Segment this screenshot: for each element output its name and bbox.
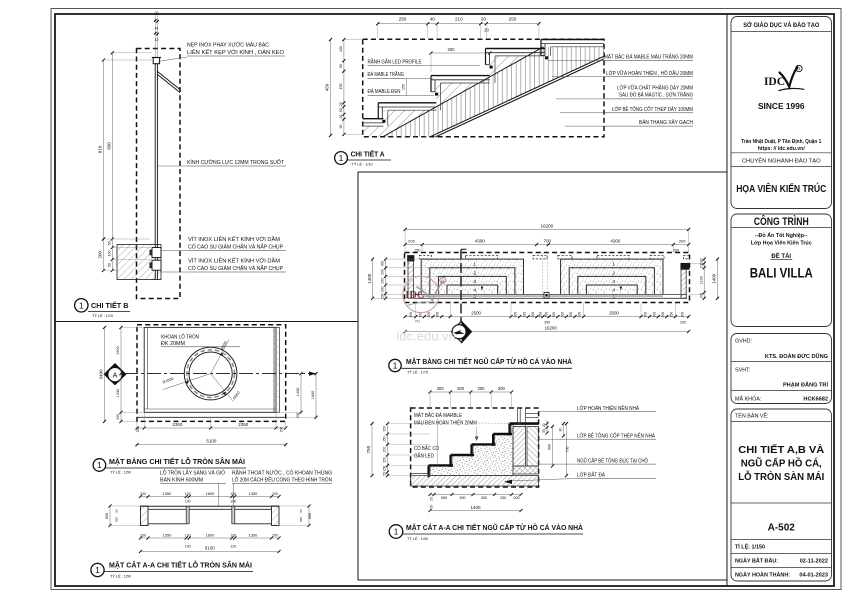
svg-text:250: 250 [500, 496, 506, 500]
svg-text:VÍT INOX LIÊN KẾT KÍNH VỚI DẦM: VÍT INOX LIÊN KẾT KÍNH VỚI DẦM [188, 257, 280, 265]
svg-text:300: 300 [381, 269, 385, 275]
svg-text:GẮN LED: GẮN LED [414, 452, 434, 460]
svg-text:CHI TIẾT A: CHI TIẾT A [351, 149, 386, 159]
svg-text:300: 300 [578, 312, 582, 318]
svg-text:1430: 1430 [296, 388, 300, 396]
svg-text:450: 450 [325, 83, 330, 91]
svg-text:100: 100 [230, 533, 236, 537]
svg-text:MẶT BẬC ĐÁ MABLE MÀU TRẮNG 20M: MẶT BẬC ĐÁ MABLE MÀU TRẮNG 20MM [604, 53, 693, 61]
svg-text:LỚP VỮA HOÀN THIỆN , HỒ DẦU 20: LỚP VỮA HOÀN THIỆN , HỒ DẦU 20MM [606, 69, 693, 77]
svg-text:CỔ BẬC CÓ: CỔ BẬC CÓ [414, 445, 439, 452]
svg-text:120: 120 [230, 545, 236, 549]
svg-text:1100: 1100 [699, 276, 703, 284]
svg-text:3: 3 [612, 279, 615, 284]
svg-text:200: 200 [140, 533, 146, 537]
svg-text:1350: 1350 [163, 532, 172, 537]
svg-text:60: 60 [339, 108, 343, 112]
svg-text:250: 250 [399, 17, 407, 22]
svg-text:100: 100 [230, 492, 236, 496]
svg-text:02-11-2022: 02-11-2022 [800, 559, 828, 565]
svg-text:MẶT CẮT A-A CHI TIẾT NGŨ CẤP: MẶT CẮT A-A CHI TIẾT NGŨ CẤP TỪ HỒ CÁ VÀ… [406, 522, 583, 532]
svg-text:1400: 1400 [367, 273, 372, 284]
svg-text:1400: 1400 [470, 505, 481, 510]
svg-text:16200: 16200 [541, 223, 554, 228]
svg-text:750: 750 [366, 445, 371, 453]
svg-text:Lớp Họa Viên Kiến Trúc: Lớp Họa Viên Kiến Trúc [751, 240, 812, 247]
svg-text:50: 50 [108, 263, 112, 267]
svg-text:250: 250 [545, 312, 549, 318]
svg-text:200: 200 [680, 312, 684, 318]
svg-text:155: 155 [339, 84, 343, 90]
svg-text:TỶ LỆ : 1/50: TỶ LỆ : 1/50 [110, 470, 131, 475]
svg-text:BALI VILLA: BALI VILLA [750, 266, 813, 281]
svg-text:100: 100 [185, 533, 191, 537]
svg-text:NGÀY HOÀN THÀNH:: NGÀY HOÀN THÀNH: [735, 572, 790, 579]
svg-text:04-01-2023: 04-01-2023 [799, 573, 828, 579]
svg-text:300: 300 [436, 312, 440, 318]
svg-text:100: 100 [185, 492, 191, 496]
svg-text:2: 2 [474, 270, 477, 275]
svg-text:1: 1 [474, 262, 477, 267]
svg-text:200: 200 [699, 293, 703, 299]
svg-text:16200: 16200 [545, 326, 558, 331]
svg-text:1600: 1600 [116, 346, 120, 354]
svg-text:20: 20 [430, 497, 434, 501]
svg-text:20: 20 [484, 28, 489, 33]
svg-text:HCK6682: HCK6682 [803, 397, 828, 403]
svg-text:150: 150 [383, 426, 387, 432]
svg-text:1430: 1430 [116, 389, 120, 397]
svg-text:300: 300 [561, 312, 565, 318]
svg-text:4: 4 [474, 288, 477, 293]
svg-text:200: 200 [513, 496, 519, 500]
svg-text:MẶT BẬC ĐÁ MARBLE: MẶT BẬC ĐÁ MARBLE [414, 412, 463, 419]
svg-text:CHI TIẾT A,B VÀ: CHI TIẾT A,B VÀ [738, 443, 825, 456]
svg-text:300: 300 [531, 312, 535, 318]
svg-text:LIÊN KẾT KẸP VỚI KÍNH , DÁN KE: LIÊN KẾT KẸP VỚI KÍNH , DÁN KEO [187, 48, 284, 56]
svg-text:751: 751 [415, 320, 421, 324]
svg-text:200: 200 [140, 492, 146, 496]
svg-text:1350: 1350 [163, 491, 172, 496]
svg-text:SINCE 1996: SINCE 1996 [758, 101, 805, 111]
svg-text:SVHT:: SVHT: [735, 368, 750, 374]
svg-text:Trần Nhật Duật, P Tân Định, Qu: Trần Nhật Duật, P Tân Định, Quận 1 [741, 139, 821, 145]
svg-text:200: 200 [409, 312, 413, 318]
svg-text:100: 100 [339, 46, 343, 52]
svg-text:TỶ LỆ : 1/50: TỶ LỆ : 1/50 [110, 574, 131, 579]
svg-text:50: 50 [115, 509, 119, 513]
svg-text:BÁN KÍNH 600MM: BÁN KÍNH 600MM [160, 477, 203, 484]
svg-text:300: 300 [381, 278, 385, 284]
svg-text:https: // idc.edu.vn/: https: // idc.edu.vn/ [758, 146, 806, 152]
svg-text:A-502: A-502 [768, 523, 796, 534]
svg-text:30: 30 [430, 505, 434, 509]
svg-text:100: 100 [185, 545, 191, 549]
svg-text:LỚP BÊ TÔNG CỐP THÉP NÊN NHÀ: LỚP BÊ TÔNG CỐP THÉP NÊN NHÀ [577, 431, 656, 439]
svg-text:600: 600 [308, 513, 312, 519]
svg-text:300: 300 [437, 386, 445, 391]
svg-text:20: 20 [542, 423, 546, 427]
svg-text:200: 200 [136, 427, 140, 433]
svg-text:200: 200 [408, 238, 415, 243]
svg-text:20: 20 [339, 102, 343, 106]
svg-text:BẢN THANG XÂY GẠCH: BẢN THANG XÂY GẠCH [639, 119, 693, 126]
svg-text:150: 150 [402, 84, 406, 90]
svg-text:4300: 4300 [475, 238, 486, 243]
svg-text:50: 50 [339, 125, 343, 129]
svg-text:300: 300 [514, 312, 518, 318]
svg-text:SỞ GIÁO DỤC VÀ ĐÀO TẠO: SỞ GIÁO DỤC VÀ ĐÀO TẠO [743, 22, 819, 29]
svg-text:20: 20 [481, 17, 487, 22]
svg-text:250: 250 [538, 312, 542, 318]
svg-text:ĐK 20MM: ĐK 20MM [161, 341, 185, 347]
svg-text:1350: 1350 [249, 491, 258, 496]
svg-text:150: 150 [383, 457, 387, 463]
svg-text:100: 100 [230, 499, 236, 503]
svg-text:MÃ KHÓA:: MÃ KHÓA: [735, 396, 761, 403]
svg-text:300: 300 [459, 496, 465, 500]
svg-text:R: R [441, 278, 444, 283]
svg-text:ĐỀ TÀI: ĐỀ TÀI [771, 253, 791, 260]
svg-text:300: 300 [661, 312, 665, 318]
svg-text:2500: 2500 [609, 310, 619, 315]
svg-text:KHOAN LỖ TRÒN: KHOAN LỖ TRÒN [161, 334, 199, 341]
svg-text:MÀU ĐEN HOÀN THIỆN 20MM: MÀU ĐEN HOÀN THIỆN 20MM [414, 419, 477, 427]
svg-text:200: 200 [279, 427, 283, 433]
svg-text:KÍNH CƯỜNG LỰC 12MM TRONG SUỐT: KÍNH CƯỜNG LỰC 12MM TRONG SUỐT [187, 159, 284, 166]
svg-text:1400: 1400 [712, 273, 717, 284]
svg-text:300: 300 [569, 312, 573, 318]
svg-text:NẸP INOX PHAY XƯỚC MÀU BẠC: NẸP INOX PHAY XƯỚC MÀU BẠC [187, 42, 269, 49]
svg-text:RÃNH GẮN LED PROFILE: RÃNH GẮN LED PROFILE [368, 58, 423, 66]
svg-text:300: 300 [381, 286, 385, 292]
svg-text:CÓ CAO SU GIẢM CHẤN VÀ NẮP CHỤ: CÓ CAO SU GIẢM CHẤN VÀ NẮP CHỤP [188, 264, 284, 272]
svg-text:20: 20 [339, 115, 343, 119]
svg-text:LỚP VỮA CHẤT PHẲNG DÀY 20MM: LỚP VỮA CHẤT PHẲNG DÀY 20MM [617, 85, 693, 92]
svg-text:700: 700 [543, 238, 551, 243]
svg-text:3: 3 [474, 279, 477, 284]
svg-text:LỚP ĐẤT ĐÁ: LỚP ĐẤT ĐÁ [577, 472, 606, 479]
svg-text:A: A [113, 372, 118, 379]
svg-text:IDC: IDC [764, 76, 785, 88]
svg-text:KTS. ĐOÀN ĐỨC DŨNG: KTS. ĐOÀN ĐỨC DŨNG [765, 353, 828, 360]
svg-text:810: 810 [98, 145, 103, 153]
svg-text:5100: 5100 [206, 439, 217, 444]
svg-text:300: 300 [522, 312, 526, 318]
svg-text:TÊN BẢN VẼ:: TÊN BẢN VẼ: [735, 412, 769, 420]
svg-text:300: 300 [457, 386, 465, 391]
svg-text:150: 150 [383, 447, 387, 453]
svg-text:250: 250 [673, 249, 679, 253]
svg-text:TỈ LỆ: 1/150: TỈ LỆ: 1/150 [735, 543, 765, 551]
svg-text:200: 200 [272, 533, 278, 537]
svg-text:200: 200 [116, 414, 120, 420]
svg-text:250: 250 [670, 312, 674, 318]
svg-text:200: 200 [272, 492, 278, 496]
svg-text:210: 210 [455, 17, 463, 22]
svg-text:1600: 1600 [206, 491, 215, 496]
svg-text:50: 50 [542, 429, 546, 433]
svg-text:150: 150 [383, 436, 387, 442]
svg-text:20: 20 [155, 11, 159, 15]
svg-text:IDC: IDC [405, 290, 424, 301]
svg-text:50: 50 [339, 64, 343, 68]
svg-text:3400: 3400 [99, 369, 104, 380]
svg-text:300: 300 [381, 261, 385, 267]
svg-text:40: 40 [430, 17, 436, 22]
svg-text:300: 300 [652, 312, 656, 318]
svg-text:LỚP HOÀN THIỆN NỀN NHÀ: LỚP HOÀN THIỆN NỀN NHÀ [577, 404, 640, 412]
svg-text:1: 1 [79, 300, 84, 310]
svg-text:4: 4 [612, 288, 615, 293]
svg-text:ĐÁ MABLE TRẮNG: ĐÁ MABLE TRẮNG [368, 70, 405, 78]
svg-text:1: 1 [339, 153, 344, 163]
svg-text:GVHD:: GVHD: [735, 339, 752, 345]
svg-text:890: 890 [107, 142, 112, 150]
svg-text:TỶ LỆ : 1/75: TỶ LỆ : 1/75 [407, 370, 428, 375]
svg-text:TỶ LỆ : 1/10: TỶ LỆ : 1/10 [352, 162, 373, 167]
svg-text:CHUYÊN NGHÀNH ĐÀO TẠO: CHUYÊN NGHÀNH ĐÀO TẠO [742, 157, 821, 165]
svg-text:1: 1 [393, 361, 398, 371]
svg-text:CHI TIẾT B: CHI TIẾT B [91, 300, 129, 310]
svg-text:300: 300 [427, 312, 431, 318]
svg-text:200: 200 [680, 321, 686, 325]
svg-text:--Đồ Án Tốt Nghiệp--: --Đồ Án Tốt Nghiệp-- [755, 232, 808, 239]
svg-text:1: 1 [612, 262, 615, 267]
svg-text:100: 100 [108, 251, 112, 257]
svg-text:idc.edu.vn: idc.edu.vn [397, 329, 456, 344]
svg-text:50: 50 [108, 241, 112, 245]
svg-text:2350: 2350 [238, 422, 249, 427]
svg-text:SAU ĐÓ BẢ MASTIC , SƠN TRẮNG: SAU ĐÓ BẢ MASTIC , SƠN TRẮNG [619, 91, 693, 99]
svg-text:300: 300 [644, 312, 648, 318]
svg-text:1: 1 [97, 460, 102, 470]
svg-text:650: 650 [441, 496, 447, 500]
svg-text:200: 200 [98, 251, 103, 259]
svg-text:12: 12 [155, 38, 159, 42]
svg-text:250: 250 [544, 321, 550, 325]
svg-text:CÓ CAO SU GIẢM CHẤN VÀ NẮP CHỤ: CÓ CAO SU GIẢM CHẤN VÀ NẮP CHỤP [188, 243, 284, 251]
svg-text:250: 250 [509, 17, 517, 22]
svg-text:2350: 2350 [172, 422, 183, 427]
svg-text:HỌA VIÊN KIẾN TRÚC: HỌA VIÊN KIẾN TRÚC [736, 182, 827, 195]
svg-text:ĐÁ MABLE ĐEN: ĐÁ MABLE ĐEN [368, 88, 401, 95]
svg-text:1350: 1350 [249, 532, 258, 537]
svg-text:RÃNH THOÁT NƯỚC , CÓ KHOAN THỦ: RÃNH THOÁT NƯỚC , CÓ KHOAN THỦNG [232, 470, 332, 477]
svg-text:44: 44 [155, 27, 159, 31]
svg-text:300: 300 [552, 312, 556, 318]
svg-text:4300: 4300 [610, 238, 621, 243]
svg-text:TỶ LỆ : 1/10: TỶ LỆ : 1/10 [92, 313, 113, 318]
svg-text:80: 80 [559, 428, 563, 432]
svg-text:5100: 5100 [205, 546, 216, 551]
svg-text:2500: 2500 [471, 310, 481, 315]
svg-text:50: 50 [299, 509, 303, 513]
svg-text:LỖ TRÒN LẤY SÁNG VÀ GIÓ: LỖ TRÒN LẤY SÁNG VÀ GIÓ [160, 470, 225, 477]
svg-text:250: 250 [415, 249, 421, 253]
svg-text:LỚP BÊ TÔNG CỐT THÉP DÀY 100MM: LỚP BÊ TÔNG CỐT THÉP DÀY 100MM [612, 105, 693, 113]
svg-text:600: 600 [105, 513, 109, 519]
svg-text:550: 550 [299, 517, 303, 522]
svg-text:NGÀY BẮT ĐẦU:: NGÀY BẮT ĐẦU: [735, 557, 778, 565]
svg-text:2: 2 [612, 270, 615, 275]
svg-text:600: 600 [548, 444, 552, 450]
svg-text:NGŨ CẤP BÊ TÔNG ĐÚC TẠI CHỖ: NGŨ CẤP BÊ TÔNG ĐÚC TẠI CHỖ [577, 456, 648, 464]
svg-text:TỶ LỆ : 1/30: TỶ LỆ : 1/30 [407, 536, 428, 541]
svg-text:100: 100 [185, 499, 191, 503]
svg-text:200: 200 [679, 238, 686, 243]
svg-text:300: 300 [481, 496, 487, 500]
svg-text:1600: 1600 [206, 532, 215, 537]
svg-text:NGŨ CẤP HỒ CÁ,: NGŨ CẤP HỒ CÁ, [741, 457, 822, 470]
svg-text:CÔNG TRÌNH: CÔNG TRÌNH [754, 215, 809, 228]
svg-text:LỖ TRÒN SÀN MÁI: LỖ TRÒN SÀN MÁI [738, 470, 824, 483]
svg-text:PHẠM ĐĂNG TRÍ: PHẠM ĐĂNG TRÍ [783, 381, 829, 389]
svg-text:250: 250 [448, 47, 456, 52]
svg-text:VÍT INOX LIÊN KẾT KÍNH VỚI DẦM: VÍT INOX LIÊN KẾT KÍNH VỚI DẦM [188, 235, 280, 243]
svg-text:1: 1 [95, 565, 100, 575]
svg-text:MẶT BẰNG CHI TIẾT NGŨ CẤP TỪ H: MẶT BẰNG CHI TIẾT NGŨ CẤP TỪ HỒ CÁ VÀO N… [406, 356, 572, 366]
svg-text:750: 750 [566, 447, 570, 453]
svg-text:300: 300 [478, 386, 486, 391]
svg-text:150: 150 [383, 466, 387, 472]
svg-text:550: 550 [115, 517, 119, 522]
svg-text:1600: 1600 [311, 391, 315, 399]
svg-text:300: 300 [498, 386, 506, 391]
svg-text:50: 50 [383, 472, 387, 476]
svg-text:1: 1 [394, 527, 399, 537]
svg-text:LỖ 20M CÁCH ĐỀU CONG THEO HÌNH: LỖ 20M CÁCH ĐỀU CONG THEO HÌNH TRÒN [232, 477, 332, 484]
